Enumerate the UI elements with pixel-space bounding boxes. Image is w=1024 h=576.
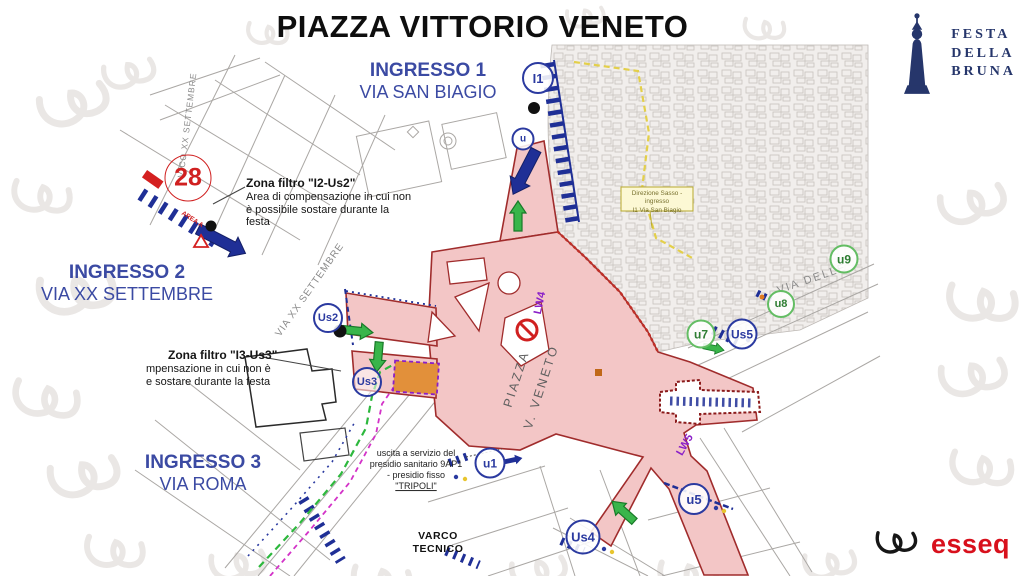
gate-u: u: [512, 128, 535, 151]
gate-us2: Us2: [313, 303, 343, 333]
gate-u7: u7: [687, 320, 716, 349]
platform-area: [393, 361, 439, 395]
esseq-logo-text: esseq: [931, 529, 1010, 560]
gate-i1: I1: [522, 62, 554, 94]
page-title: PIAZZA VITTORIO VENETO: [0, 9, 965, 45]
gate-u1: u1: [475, 448, 506, 479]
marker-28: 28: [165, 155, 212, 202]
gate-us4: Us4: [566, 520, 601, 555]
note-zona-filtro-1: Zona filtro "I2-Us2" Area di compensazio…: [246, 177, 411, 229]
slide: PIAZZA VITTORIO VENETO FESTA DELLA BRUNA…: [0, 0, 1024, 576]
esseq-icon: [873, 524, 923, 564]
note-medical-exit: uscita a servizio del presidio sanitario…: [370, 448, 463, 492]
festa-logo-text: FESTA DELLA BRUNA: [951, 26, 1016, 83]
note-varco-tecnico: VARCO TECNICO: [413, 530, 464, 556]
label-ingresso-1: INGRESSO 1 VIA SAN BIAGIO: [359, 60, 496, 104]
bruna-statue-icon: [891, 10, 943, 98]
gate-u9: u9: [830, 245, 859, 274]
gate-us3: Us3: [352, 367, 382, 397]
label-ingresso-2: INGRESSO 2 VIA XX SETTEMBRE: [41, 262, 213, 306]
festa-della-bruna-logo: FESTA DELLA BRUNA: [891, 10, 1016, 98]
gate-u5: u5: [678, 483, 710, 515]
note-zona-filtro-2: Zona filtro "I3-Us3" mpensazione in cui …: [146, 349, 277, 388]
label-ingresso-3: INGRESSO 3 VIA ROMA: [145, 452, 261, 496]
gate-u8: u8: [767, 290, 795, 318]
gate-us5: Us5: [727, 319, 758, 350]
esseq-logo: esseq: [873, 524, 1010, 564]
exit-arrow-u1: [504, 453, 524, 466]
note-sasso-direction: Direzione Sasso - ingresso I1 Via San Bi…: [623, 190, 691, 215]
small-orange-marker: [595, 369, 602, 376]
fountain: [498, 272, 520, 294]
